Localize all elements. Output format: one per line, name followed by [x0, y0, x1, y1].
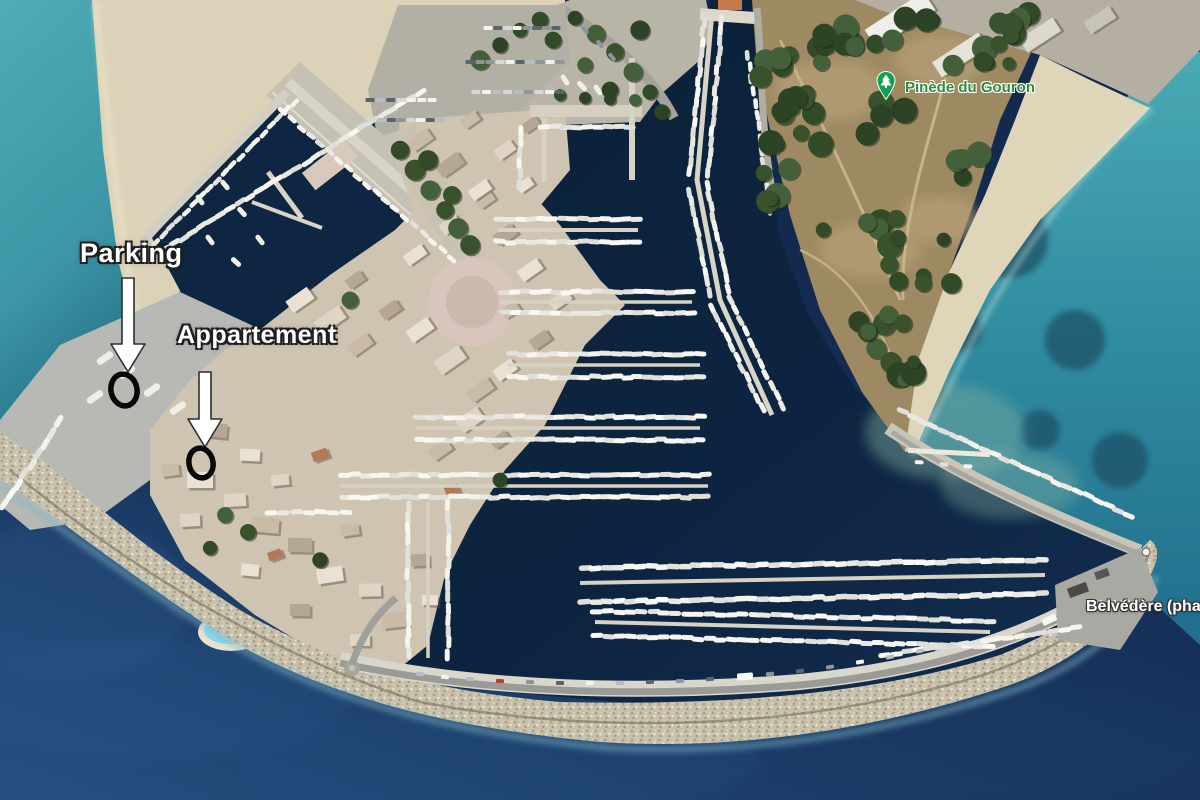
satellite-imagery [0, 0, 1200, 800]
satellite-map-view[interactable]: Parking Appartement Pinède du Gouron Bel… [0, 0, 1200, 800]
